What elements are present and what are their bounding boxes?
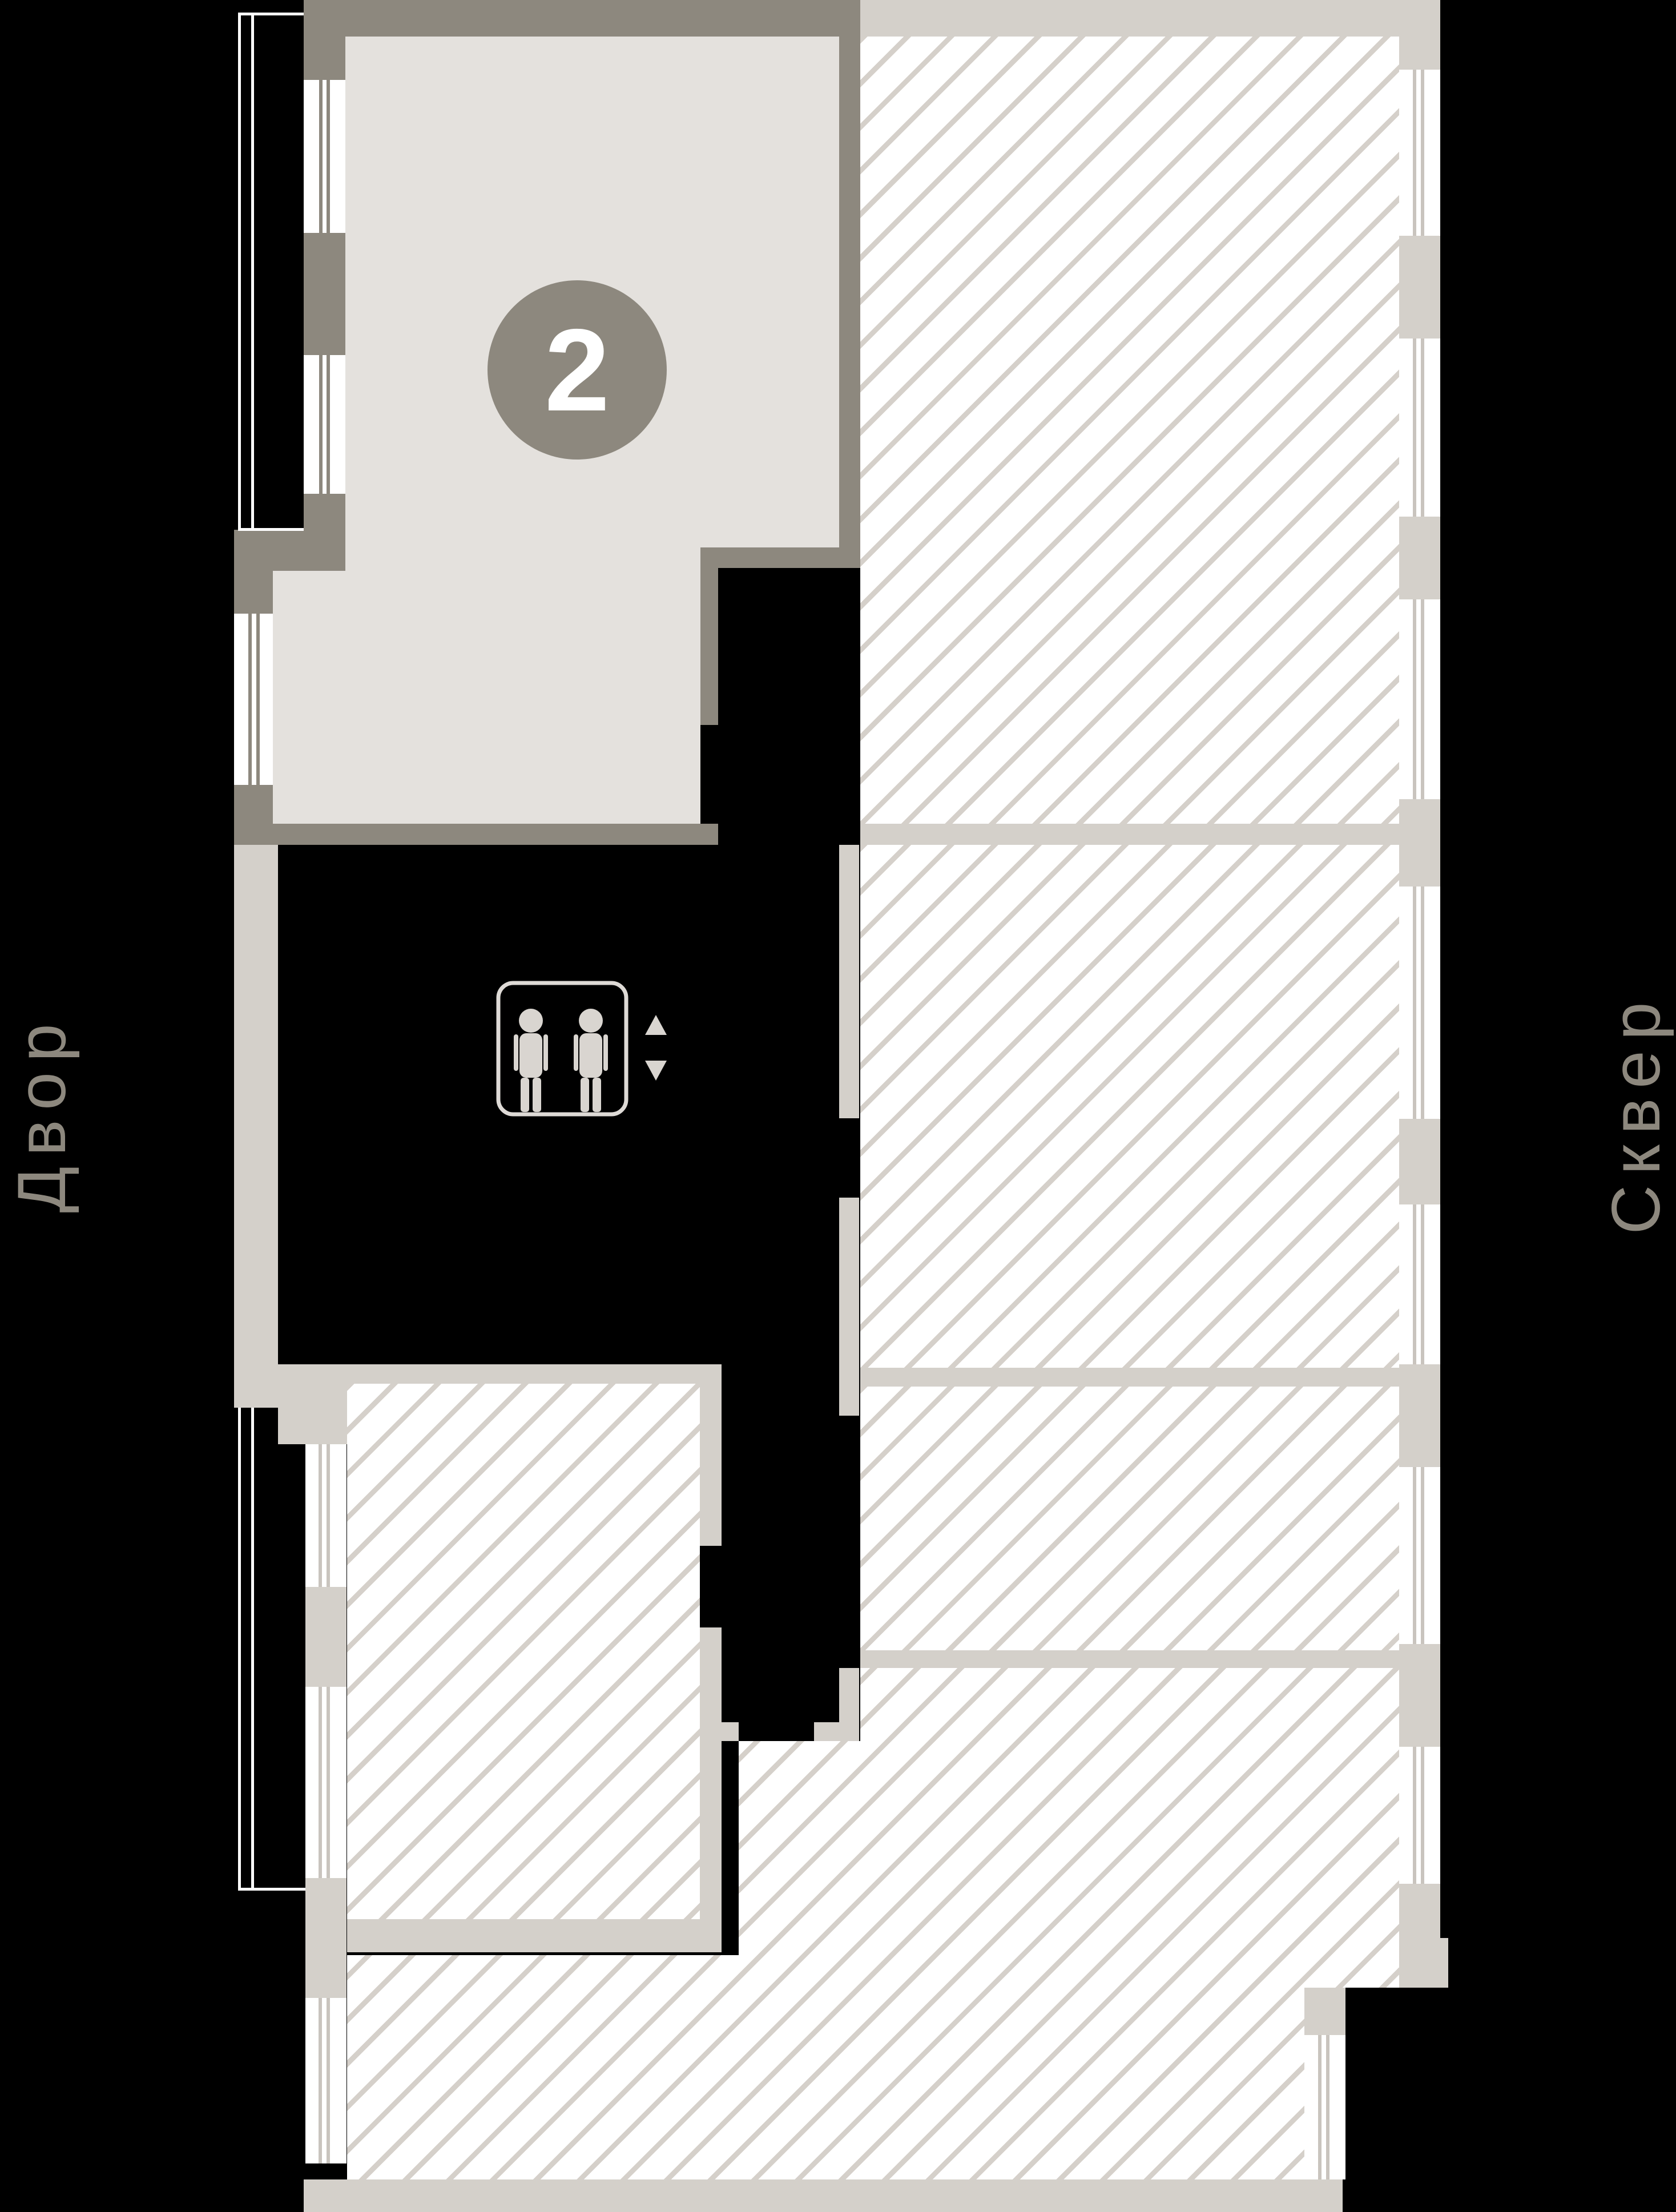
facade-window	[1399, 1204, 1440, 1364]
facade-pier	[1399, 236, 1440, 339]
window-mullion	[327, 1687, 330, 1878]
top-wall-right	[860, 0, 1399, 37]
window-mullion	[327, 355, 330, 494]
unit2-wall-top	[304, 0, 860, 37]
courtyard-label: Двор	[2, 1013, 81, 1212]
balcony-rail-line	[251, 13, 254, 531]
facade-pier	[1399, 1884, 1440, 1938]
unit2-wall-left-lower-1	[234, 571, 273, 614]
facade-window	[1399, 1467, 1440, 1644]
unit-right-3[interactable]	[860, 1387, 1399, 1650]
wall-stub-b	[814, 1722, 859, 1741]
facade-window	[1399, 599, 1440, 799]
arrow-up-icon	[645, 1015, 667, 1035]
corridor-outer-wall	[234, 845, 278, 1408]
unit-ll-pier-2	[305, 1878, 347, 1998]
unit-mid-right[interactable]	[860, 845, 1399, 1368]
apartment-number: 2	[545, 312, 610, 429]
bottom-band-wall	[304, 2179, 1343, 2212]
window-mullion	[319, 1444, 322, 1587]
divider-wall-3	[860, 1650, 1440, 1668]
facade-pier	[1399, 1644, 1440, 1747]
divider-wall-1	[860, 824, 1440, 845]
person-icon	[514, 1009, 548, 1112]
window-mullion	[248, 614, 252, 785]
person-icon	[574, 1009, 608, 1112]
facade-window	[1399, 887, 1440, 1119]
window-mullion	[1413, 1747, 1416, 1884]
window-mullion	[1413, 887, 1416, 1119]
window-mullion	[1421, 599, 1424, 799]
window-mullion	[327, 80, 330, 233]
park-label: Сквер	[1597, 992, 1675, 1234]
unit2-window-2	[304, 355, 345, 494]
wall-stub-a	[711, 1722, 739, 1741]
unit2-room-mid[interactable]	[345, 547, 700, 571]
window-mullion	[1421, 1467, 1424, 1644]
window-mullion	[319, 80, 323, 233]
facade-pier	[1399, 1364, 1440, 1467]
facade-window	[1304, 2035, 1345, 2179]
window-mullion	[1413, 1467, 1416, 1644]
window-mullion	[319, 1687, 322, 1878]
facade-pier	[1399, 0, 1440, 70]
window-mullion	[256, 614, 260, 785]
balcony-rail-line	[251, 1408, 254, 1891]
unit-top-right[interactable]	[860, 37, 1399, 824]
arrow-down-icon	[645, 1061, 667, 1081]
unit2-window-1	[304, 80, 345, 233]
window-mullion	[1421, 339, 1424, 517]
unit-ll-wall-top	[278, 1364, 722, 1384]
unit2-room-lower[interactable]	[273, 571, 700, 824]
balcony-rail-line	[238, 1408, 241, 1891]
balcony-rail-line	[238, 528, 304, 531]
unit-mr-wall-left-1	[839, 845, 859, 1118]
unit2-wall-right	[839, 0, 860, 568]
divider-wall-2	[860, 1368, 1440, 1387]
unit-lower-left[interactable]	[347, 1384, 700, 1919]
window-mullion	[319, 1998, 322, 2163]
unit2-wall-right-lower	[700, 568, 718, 725]
unit2-window-3	[234, 614, 273, 785]
balcony-rail-line	[238, 13, 304, 15]
unit-ll-window	[305, 1998, 347, 2163]
unit-ll-wall-bottom	[347, 1919, 722, 1952]
window-mullion	[1413, 599, 1416, 799]
unit2-wall-left-lower-2	[234, 785, 273, 824]
unit-ll-window	[305, 1444, 347, 1587]
unit-ll-pier-1	[305, 1587, 347, 1687]
apartment-number-badge[interactable]: 2	[488, 280, 667, 460]
unit2-wall-left-pier	[304, 233, 345, 355]
window-mullion	[1326, 2035, 1329, 2179]
window-mullion	[1421, 1747, 1424, 1884]
window-mullion	[1421, 1204, 1424, 1364]
facade-window	[1399, 70, 1440, 236]
facade-pier	[1399, 517, 1440, 599]
unit-mr-wall-left-2	[839, 1198, 859, 1416]
window-mullion	[1318, 2035, 1322, 2179]
window-mullion	[1421, 887, 1424, 1119]
unit-ll-window	[305, 1687, 347, 1878]
unit2-wall-left-1	[304, 37, 345, 80]
unit-ll-wall-right-1	[700, 1384, 722, 1546]
unit2-wall-bottom	[234, 824, 718, 845]
facade-pier	[1304, 1988, 1345, 2035]
window-mullion	[1421, 70, 1424, 236]
facade-pier	[1399, 799, 1440, 887]
window-mullion	[327, 1444, 330, 1587]
balcony-rail-line	[238, 13, 241, 531]
unit2-wall-left-2	[304, 494, 345, 530]
facade-window	[1399, 1747, 1440, 1884]
facade-window	[1399, 339, 1440, 517]
unit2-wall-mid	[700, 547, 862, 568]
window-mullion	[1413, 1204, 1416, 1364]
unit2-wall-corner	[234, 530, 347, 571]
window-mullion	[1413, 70, 1416, 236]
elevator-icon	[491, 970, 679, 1125]
facade-pier	[1399, 1119, 1440, 1204]
window-mullion	[1413, 339, 1416, 517]
window-mullion	[327, 1998, 330, 2163]
window-mullion	[319, 355, 323, 494]
unit-ll-wall-right-2	[700, 1627, 722, 1919]
floor-plan: 2 Двор Сквер	[0, 0, 1676, 2212]
unit-ll-corner-pier	[278, 1384, 347, 1444]
balcony-rail-line	[238, 1888, 305, 1891]
